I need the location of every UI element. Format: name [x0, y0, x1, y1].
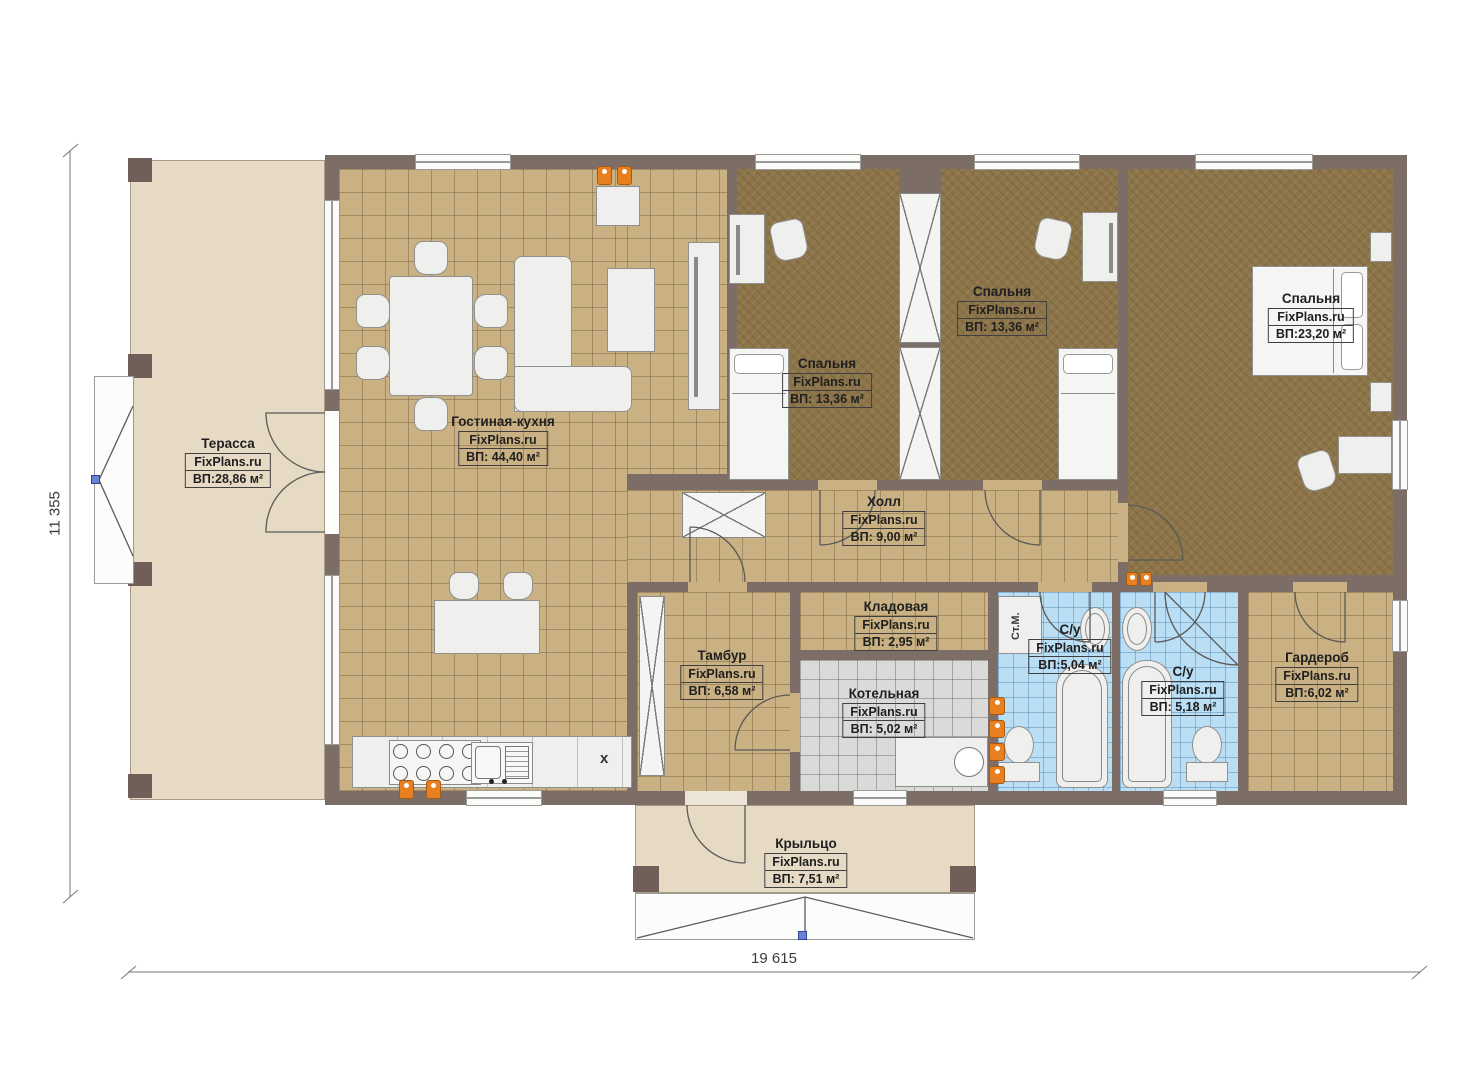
- dimension-tick: [121, 966, 136, 979]
- room-label-terrace: Терасса FixPlans.ru ВП:28,86 м²: [185, 436, 271, 488]
- boiler-counter: [895, 737, 988, 787]
- room-area: ВП: 13,36 м²: [958, 319, 1046, 335]
- room-info-box: FixPlans.ru ВП: 5,02 м²: [842, 703, 925, 738]
- room-name: Холл: [842, 494, 925, 509]
- dining-chair: [474, 346, 508, 380]
- faucet-dot: [489, 779, 494, 784]
- radiator: [597, 166, 612, 185]
- brand-watermark: FixPlans.ru: [1029, 640, 1110, 657]
- room-area: ВП:5,04 м²: [1029, 657, 1110, 673]
- brand-watermark: FixPlans.ru: [783, 374, 871, 391]
- room-name: С/у: [1141, 664, 1224, 679]
- doorway: [983, 480, 1042, 490]
- terrace-post: [128, 158, 152, 182]
- radiator: [989, 720, 1005, 738]
- doorway: [1293, 582, 1347, 592]
- window: [1392, 600, 1408, 652]
- bathtub: [1056, 664, 1108, 788]
- burner: [416, 766, 431, 781]
- room-area: ВП: 13,36 м²: [783, 391, 871, 407]
- doorway: [818, 480, 877, 490]
- faucet-dot: [502, 779, 507, 784]
- burner: [439, 766, 454, 781]
- doorway: [1038, 582, 1092, 592]
- terrace-doorway: [325, 411, 339, 534]
- radiator: [617, 166, 632, 185]
- room-area: ВП:23,20 м²: [1269, 326, 1353, 342]
- room-area: ВП: 2,95 м²: [855, 634, 936, 650]
- brand-watermark: FixPlans.ru: [186, 454, 270, 471]
- brand-watermark: FixPlans.ru: [843, 704, 924, 721]
- radiator: [989, 766, 1005, 784]
- hall-cabinet: [682, 492, 766, 538]
- dimension-width: 19 615: [714, 950, 834, 967]
- sink-drainer: [505, 746, 529, 779]
- window: [324, 200, 340, 390]
- window: [466, 790, 542, 806]
- tv: [694, 257, 698, 397]
- toilet: [1004, 726, 1034, 764]
- room-label-bedroom-3: Спальня FixPlans.ru ВП:23,20 м²: [1268, 291, 1354, 343]
- room-label-storage: Кладовая FixPlans.ru ВП: 2,95 м²: [854, 599, 937, 651]
- bar-stool: [449, 572, 479, 600]
- burner: [416, 744, 431, 759]
- burner: [393, 766, 408, 781]
- room-name: Спальня: [782, 356, 872, 371]
- bed: [1058, 348, 1118, 480]
- porch-post: [950, 866, 976, 892]
- room-name: С/у: [1028, 622, 1111, 637]
- room-name: Тамбур: [680, 648, 763, 663]
- pillow: [1063, 354, 1113, 374]
- marker-dot: [91, 475, 100, 484]
- room-info-box: FixPlans.ru ВП: 44,40 м²: [458, 431, 548, 466]
- room-area: ВП: 5,18 м²: [1142, 699, 1223, 715]
- brand-watermark: FixPlans.ru: [855, 617, 936, 634]
- boiler-unit: [954, 747, 984, 777]
- brand-watermark: FixPlans.ru: [765, 854, 846, 871]
- room-info-box: FixPlans.ru ВП: 13,36 м²: [782, 373, 872, 408]
- radiator: [1140, 572, 1152, 586]
- burner: [393, 744, 408, 759]
- floor-plan-canvas: x Ст.М.: [0, 0, 1474, 1080]
- monitor: [736, 225, 740, 275]
- toilet: [1192, 726, 1222, 764]
- room-area: ВП: 44,40 м²: [459, 449, 547, 465]
- room-info-box: FixPlans.ru ВП: 13,36 м²: [957, 301, 1047, 336]
- kitchen-island: [434, 600, 540, 654]
- room-area: ВП:6,02 м²: [1276, 685, 1357, 701]
- radiator: [989, 743, 1005, 761]
- wardrobe-closet: [899, 193, 941, 343]
- radiator: [399, 780, 414, 799]
- terrace-post: [128, 354, 152, 378]
- bathroom-sink: [1122, 607, 1152, 651]
- blanket-line: [1061, 393, 1115, 394]
- room-area: ВП:28,86 м²: [186, 471, 270, 487]
- room-area: ВП: 9,00 м²: [843, 529, 924, 545]
- living-kitchen-floor: [339, 169, 627, 791]
- desk: [729, 214, 765, 284]
- dining-chair: [356, 294, 390, 328]
- room-label-bathroom-2: С/у FixPlans.ru ВП: 5,18 м²: [1141, 664, 1224, 716]
- brand-watermark: FixPlans.ru: [681, 666, 762, 683]
- room-area: ВП: 7,51 м²: [765, 871, 846, 887]
- room-info-box: FixPlans.ru ВП: 9,00 м²: [842, 511, 925, 546]
- monitor: [1109, 223, 1113, 273]
- window: [1163, 790, 1217, 806]
- window: [1195, 154, 1313, 170]
- coffee-table: [607, 268, 655, 352]
- window: [1392, 420, 1408, 490]
- kitchen-sink: [471, 742, 533, 784]
- room-info-box: FixPlans.ru ВП: 5,18 м²: [1141, 681, 1224, 716]
- toilet-tank: [1186, 762, 1228, 782]
- dimension-tick: [63, 890, 78, 903]
- sink-basin: [475, 746, 501, 779]
- window: [324, 575, 340, 745]
- nightstand: [1370, 232, 1392, 262]
- brand-watermark: FixPlans.ru: [958, 302, 1046, 319]
- room-area: ВП: 5,02 м²: [843, 721, 924, 737]
- doorway: [1153, 582, 1207, 592]
- blanket-line: [732, 393, 786, 394]
- room-label-living-kitchen: Гостиная-кухня FixPlans.ru ВП: 44,40 м²: [451, 414, 554, 466]
- dining-chair: [474, 294, 508, 328]
- dining-chair: [414, 397, 448, 431]
- brand-watermark: FixPlans.ru: [843, 512, 924, 529]
- room-info-box: FixPlans.ru ВП: 6,58 м²: [680, 665, 763, 700]
- room-name: Спальня: [1268, 291, 1354, 306]
- window: [415, 154, 511, 170]
- room-label-hall: Холл FixPlans.ru ВП: 9,00 м²: [842, 494, 925, 546]
- washing-machine-label: Ст.М.: [1010, 602, 1022, 650]
- dining-chair: [414, 241, 448, 275]
- sofa-chaise: [514, 366, 632, 412]
- dishwasher-mark: x: [600, 750, 608, 767]
- dimension-tick: [63, 144, 78, 157]
- marker-dot: [798, 931, 807, 940]
- dimension-height: 11 355: [47, 459, 64, 569]
- room-name: Котельная: [842, 686, 925, 701]
- entrance-doorway: [685, 791, 747, 805]
- sink-bowl: [1127, 613, 1147, 645]
- room-name: Гостиная-кухня: [451, 414, 554, 429]
- bed: [729, 348, 789, 480]
- dimension-tick: [1412, 966, 1427, 979]
- room-area: ВП: 6,58 м²: [681, 683, 762, 699]
- pillow: [734, 354, 784, 374]
- bathtub-inner: [1062, 670, 1102, 782]
- terrace-post: [128, 774, 152, 798]
- doorway: [688, 582, 747, 592]
- window: [755, 154, 861, 170]
- room-label-bedroom-2: Спальня FixPlans.ru ВП: 13,36 м²: [957, 284, 1047, 336]
- stove: [389, 740, 481, 785]
- nightstand: [1370, 382, 1392, 412]
- room-name: Кладовая: [854, 599, 937, 614]
- room-label-bedroom-1: Спальня FixPlans.ru ВП: 13,36 м²: [782, 356, 872, 408]
- room-info-box: FixPlans.ru ВП:23,20 м²: [1268, 308, 1354, 343]
- desk: [1082, 212, 1118, 282]
- doorway: [1118, 503, 1128, 562]
- radiator: [989, 697, 1005, 715]
- brand-watermark: FixPlans.ru: [1142, 682, 1223, 699]
- window: [974, 154, 1080, 170]
- room-name: Терасса: [185, 436, 271, 451]
- room-name: Спальня: [957, 284, 1047, 299]
- radiator: [1126, 572, 1138, 586]
- room-label-porch: Крыльцо FixPlans.ru ВП: 7,51 м²: [764, 836, 847, 888]
- room-info-box: FixPlans.ru ВП:28,86 м²: [185, 453, 271, 488]
- brand-watermark: FixPlans.ru: [459, 432, 547, 449]
- window: [853, 790, 907, 806]
- desk: [1338, 436, 1392, 474]
- wardrobe-closet: [639, 596, 665, 776]
- room-name: Гардероб: [1275, 650, 1358, 665]
- brand-watermark: FixPlans.ru: [1269, 309, 1353, 326]
- room-info-box: FixPlans.ru ВП:5,04 м²: [1028, 639, 1111, 674]
- room-label-vestibule: Тамбур FixPlans.ru ВП: 6,58 м²: [680, 648, 763, 700]
- room-label-boiler-room: Котельная FixPlans.ru ВП: 5,02 м²: [842, 686, 925, 738]
- dining-chair: [356, 346, 390, 380]
- room-info-box: FixPlans.ru ВП:6,02 м²: [1275, 667, 1358, 702]
- doorway: [790, 693, 800, 752]
- terrace-steps: [94, 376, 134, 584]
- room-label-wardrobe: Гардероб FixPlans.ru ВП:6,02 м²: [1275, 650, 1358, 702]
- radiator: [426, 780, 441, 799]
- room-label-bathroom-1: С/у FixPlans.ru ВП:5,04 м²: [1028, 622, 1111, 674]
- bar-stool: [503, 572, 533, 600]
- wardrobe-closet: [899, 347, 941, 480]
- tv-cabinet: [688, 242, 720, 410]
- burner: [439, 744, 454, 759]
- brand-watermark: FixPlans.ru: [1276, 668, 1357, 685]
- room-name: Крыльцо: [764, 836, 847, 851]
- room-info-box: FixPlans.ru ВП: 2,95 м²: [854, 616, 937, 651]
- room-info-box: FixPlans.ru ВП: 7,51 м²: [764, 853, 847, 888]
- dining-table: [389, 276, 473, 396]
- porch-post: [633, 866, 659, 892]
- kitchen-cabinet: [596, 186, 640, 226]
